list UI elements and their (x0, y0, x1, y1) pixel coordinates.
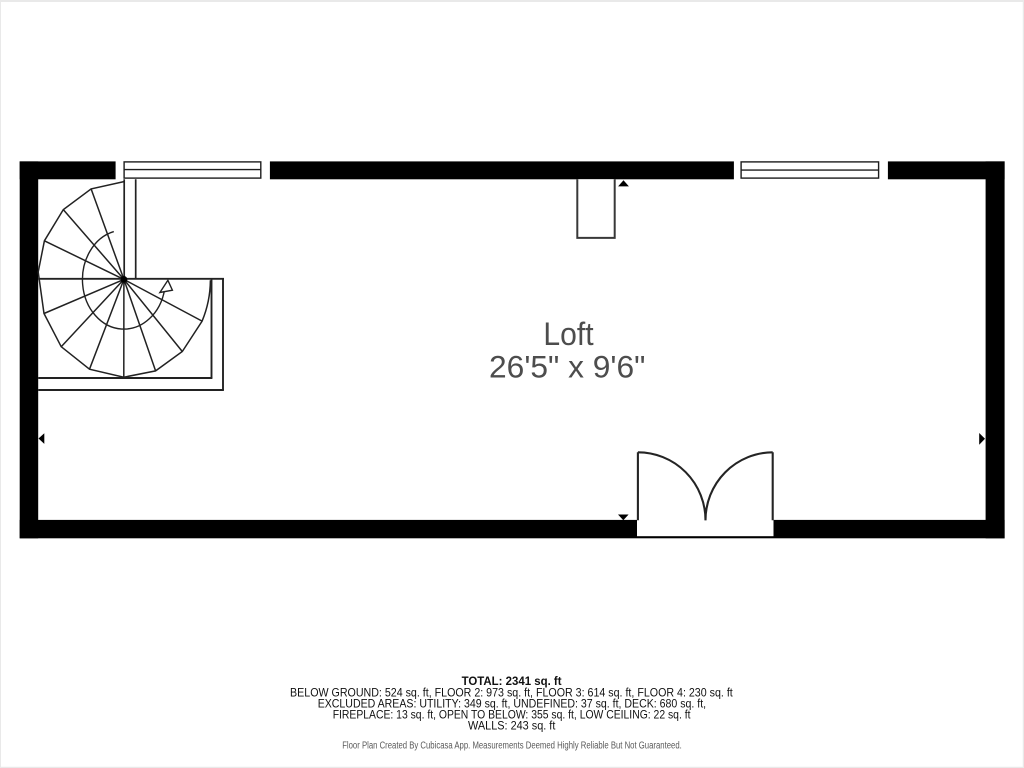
svg-text:Loft: Loft (543, 316, 593, 352)
svg-text:WALLS: 243 sq. ft: WALLS: 243 sq. ft (468, 719, 556, 733)
svg-text:26'5" x 9'6": 26'5" x 9'6" (489, 348, 645, 384)
svg-text:Floor Plan Created By Cubicasa: Floor Plan Created By Cubicasa App. Meas… (342, 740, 682, 751)
